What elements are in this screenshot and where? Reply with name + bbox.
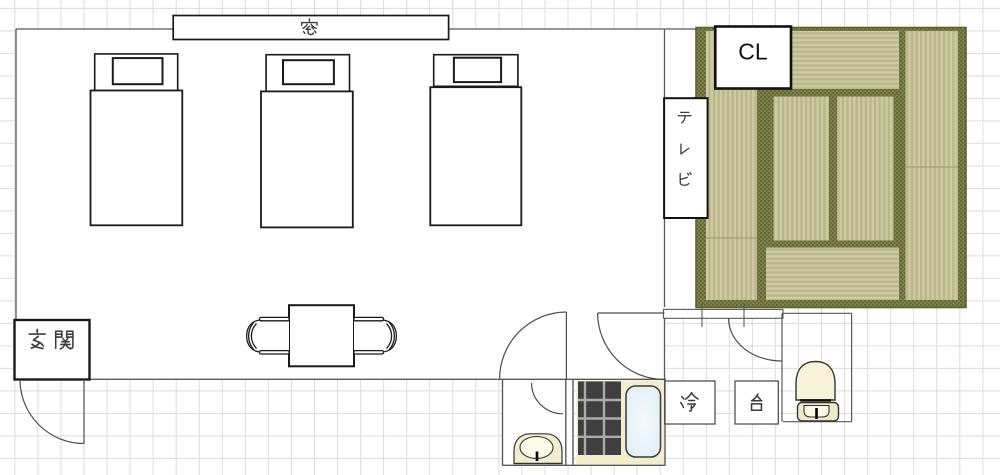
svg-text:CL: CL: [738, 39, 768, 65]
